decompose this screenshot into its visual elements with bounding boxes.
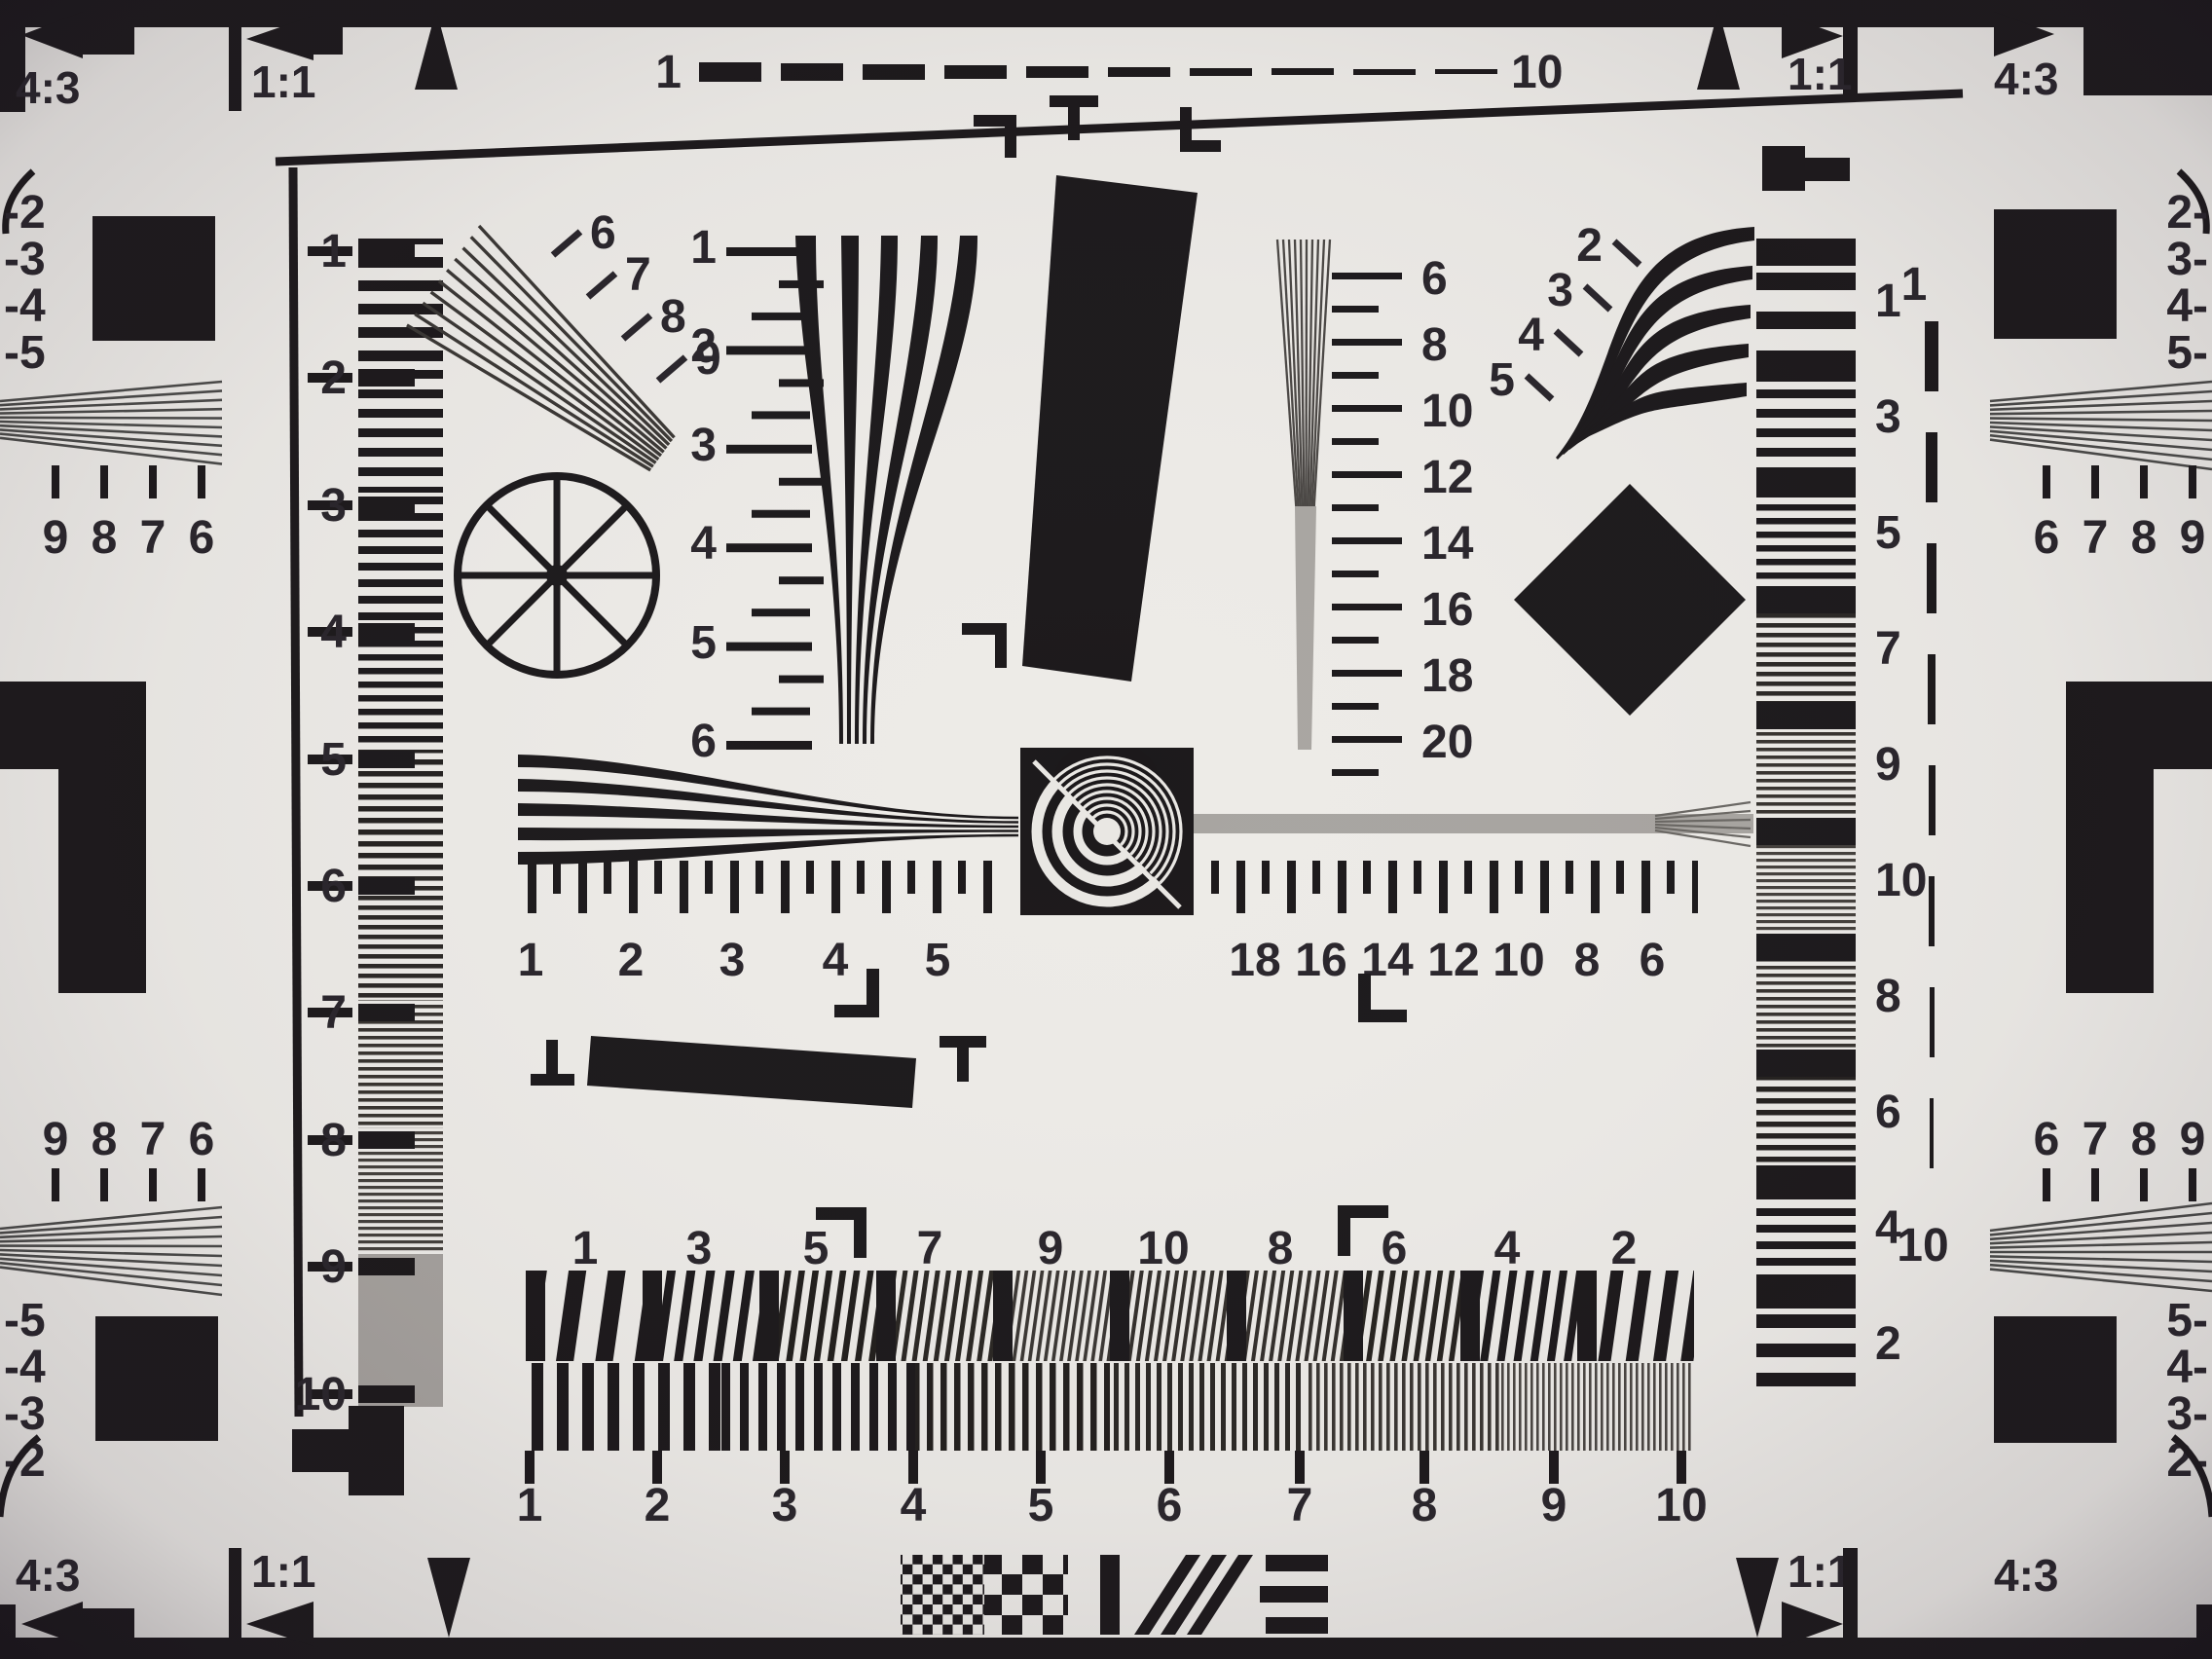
test-chart-canvas: 4:3 1:1 1:1 4:3 4:3 1:1 1:1 4:3 1 10 (0, 0, 2212, 1659)
resolution-test-chart: 4:3 1:1 1:1 4:3 4:3 1:1 1:1 4:3 1 10 (0, 0, 2212, 1659)
photo-vignette (0, 0, 2212, 1659)
